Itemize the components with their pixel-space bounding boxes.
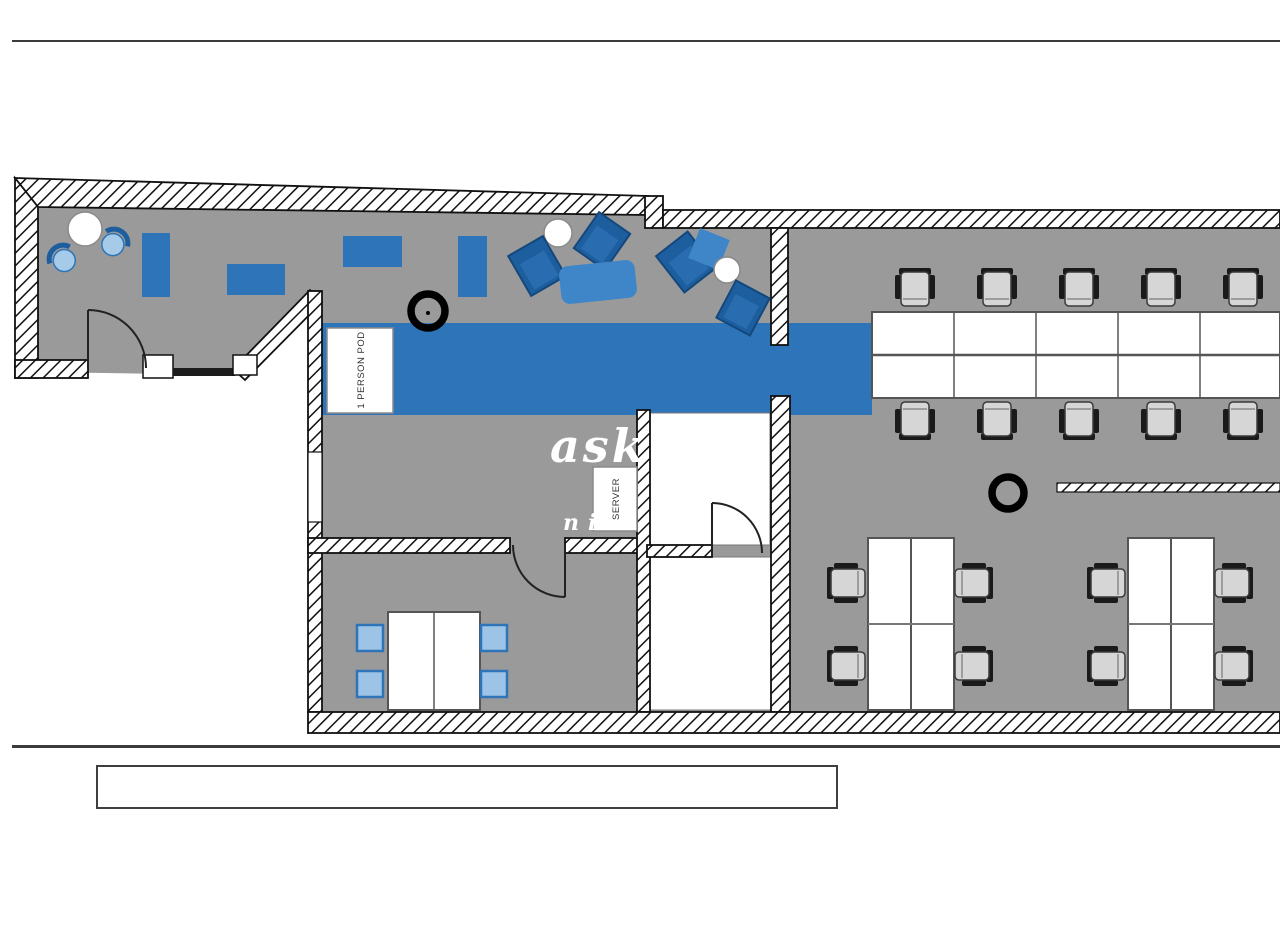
meeting-chair — [481, 625, 507, 651]
door-jamb — [143, 355, 173, 378]
office-chair — [1223, 268, 1263, 306]
blue-desk — [458, 236, 487, 297]
blue-desk — [227, 264, 285, 295]
window-strip — [173, 368, 235, 376]
office-chair — [1087, 563, 1125, 603]
round-table — [68, 212, 102, 246]
low-partition — [1057, 483, 1280, 492]
wall-top-step — [645, 196, 663, 228]
office-chair — [955, 563, 993, 603]
wall-meeting-north-a — [308, 538, 510, 553]
wall-joint-white — [308, 452, 322, 522]
meeting-chair — [481, 671, 507, 697]
office-chair — [1087, 646, 1125, 686]
watermark-line1: ask o — [550, 419, 699, 473]
ring-marker-1-dot — [426, 311, 430, 315]
wall-divider-lower — [771, 396, 790, 712]
wall-meeting-north-b — [565, 538, 647, 553]
office-chair — [977, 268, 1017, 306]
blue-desk — [142, 233, 170, 297]
room-white-lower — [650, 557, 771, 710]
office-chair — [827, 563, 865, 603]
office-chair — [955, 646, 993, 686]
office-chair — [1059, 268, 1099, 306]
office-chair — [1141, 268, 1181, 306]
office-chair — [1223, 402, 1263, 440]
office-chair — [895, 402, 935, 440]
wall-divider-upper — [771, 228, 788, 345]
round-side-table — [714, 257, 740, 283]
office-chair — [895, 268, 935, 306]
wall-rooms-divider — [647, 545, 712, 557]
office-chair — [977, 402, 1017, 440]
wall-bottom-left-entry — [15, 360, 88, 378]
round-side-table — [544, 219, 572, 247]
office-chair — [1141, 402, 1181, 440]
wall-top-right — [663, 210, 1280, 228]
watermark-line2: ni k — [563, 510, 646, 536]
office-chair — [827, 646, 865, 686]
wall-left — [15, 178, 38, 378]
floor-plan: 1 PERSON POD SERVER — [0, 0, 1280, 952]
door-jamb — [233, 355, 257, 375]
lounge-sofa — [558, 259, 638, 305]
wall-bottom — [308, 712, 1280, 733]
blue-desk — [343, 236, 402, 267]
office-chair — [1059, 402, 1099, 440]
pod-label: 1 PERSON POD — [356, 331, 367, 408]
meeting-chair — [357, 625, 383, 651]
office-chair — [1215, 563, 1253, 603]
office-chair — [1215, 646, 1253, 686]
bottom-rule — [12, 745, 1280, 748]
meeting-chair — [357, 671, 383, 697]
caption-box — [96, 765, 838, 809]
page: 1 PERSON POD SERVER — [0, 0, 1280, 952]
